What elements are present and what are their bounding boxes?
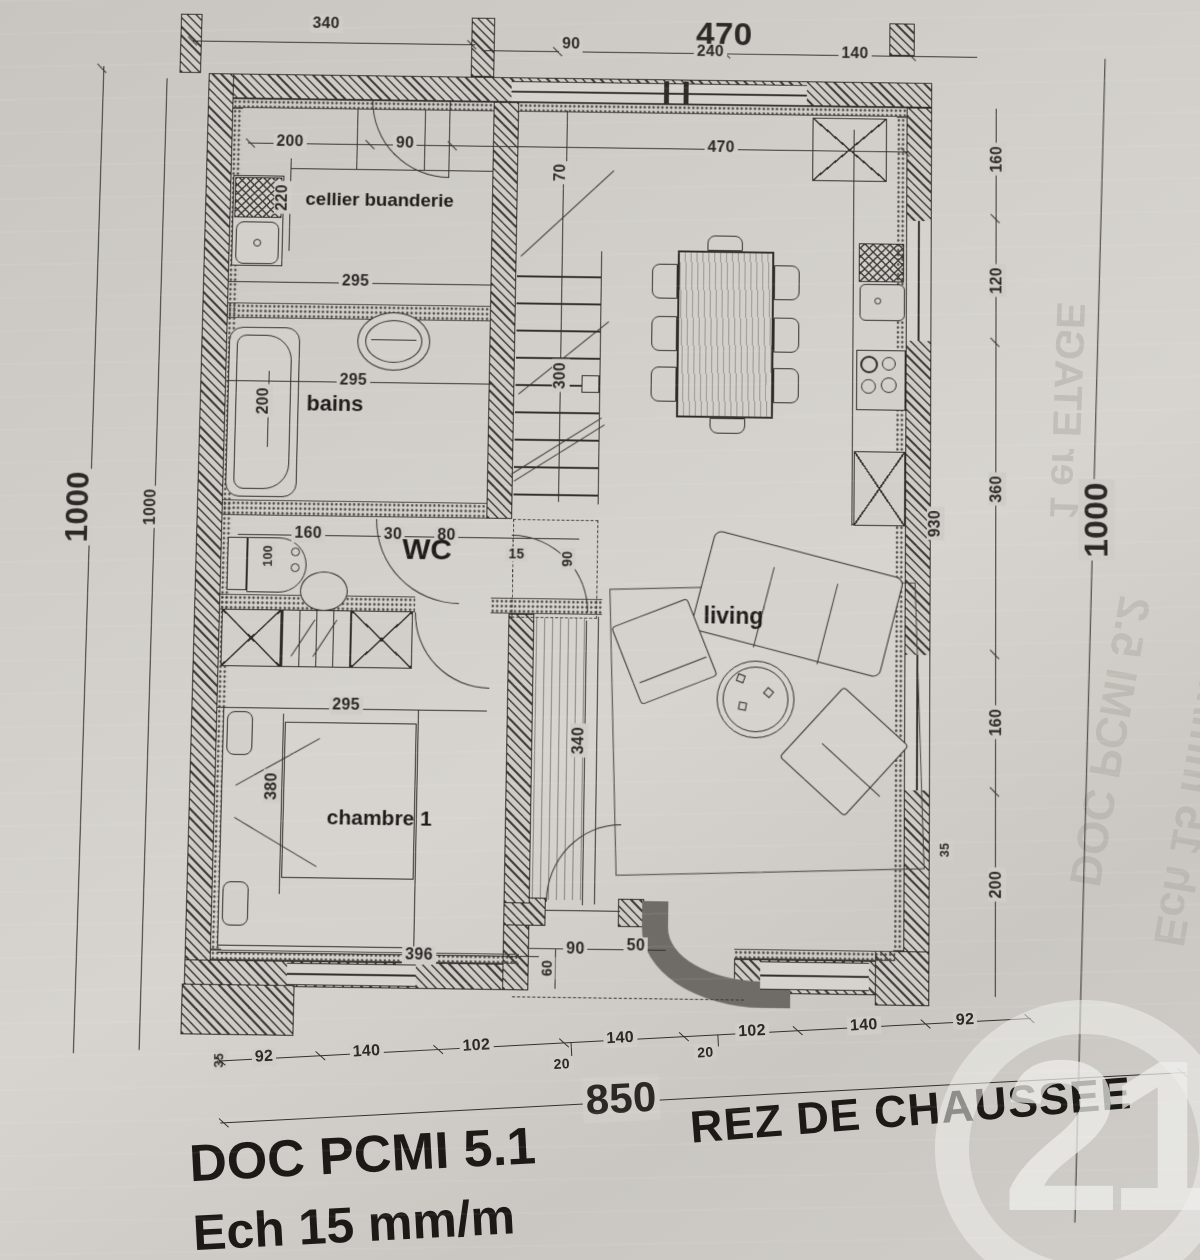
century21-number: 21 (1002, 1028, 1200, 1243)
dim-label: 102 (459, 1036, 493, 1055)
doc-reference: DOC PCMI 5.1 (188, 1116, 537, 1194)
dim-label: 92 (251, 1048, 276, 1067)
dim-label: 20 (694, 1044, 717, 1061)
ghost-text-etage: 1 er ETAGE (1040, 301, 1093, 520)
floorplan-sheet: 340 90 470 240 140 200 90 70 470 160 120… (0, 0, 1200, 1260)
dim-label: 102 (735, 1022, 769, 1041)
dim-label: 140 (349, 1042, 383, 1061)
scale-note: Ech 15 mm/m (191, 1187, 516, 1260)
overall-dim-label: 850 (581, 1074, 660, 1124)
dim-label: 92 (952, 1011, 977, 1030)
leader-line (717, 1034, 719, 1046)
dim-label: 140 (847, 1016, 881, 1035)
dim-label: 20 (550, 1056, 573, 1073)
dim-label: 140 (603, 1029, 637, 1048)
leader-line (571, 1042, 573, 1056)
